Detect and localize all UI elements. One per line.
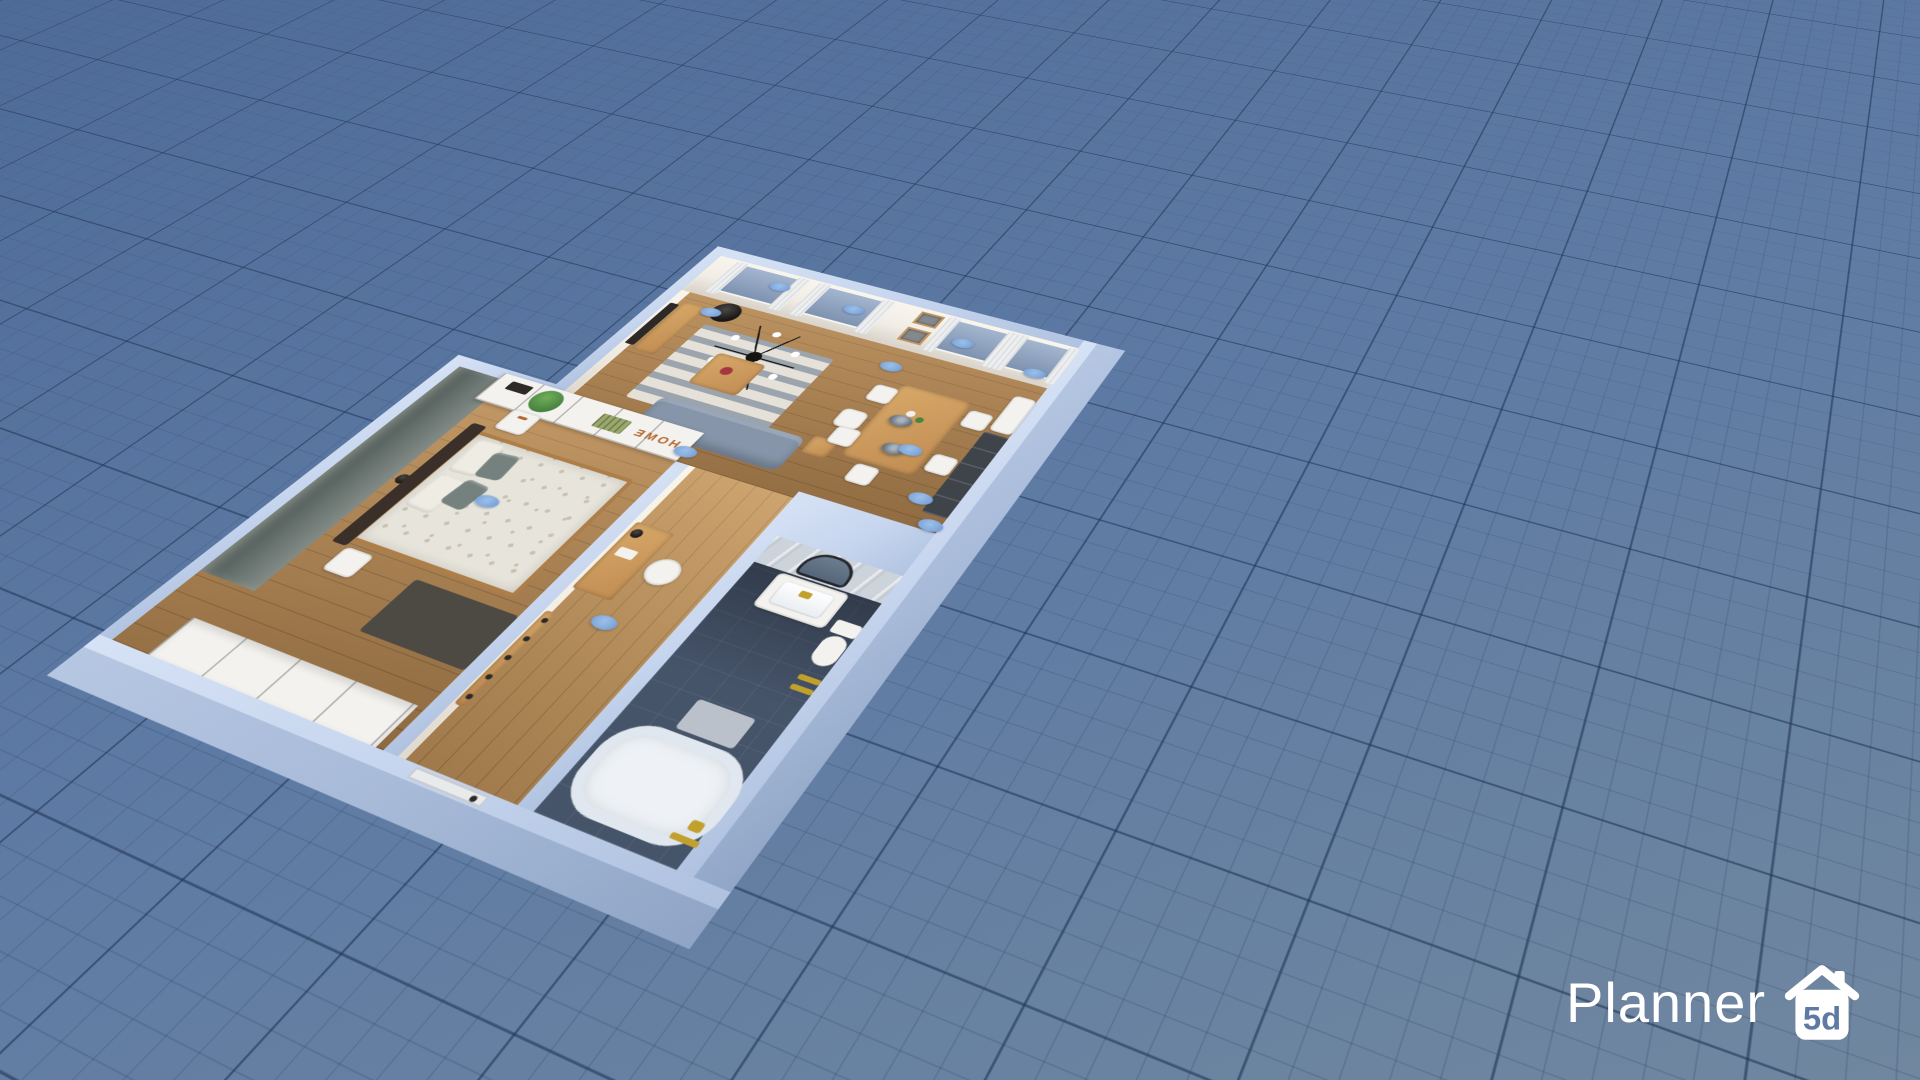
planner-logo-text: Planner: [1566, 975, 1766, 1031]
perspective-layer: HOME: [0, 0, 1920, 1080]
3d-viewport[interactable]: HOME: [0, 0, 1920, 1080]
house-chimney-icon: [1835, 971, 1845, 987]
planner5d-watermark: Planner 5d: [1566, 960, 1862, 1046]
planner-5d-badge-icon: 5d: [1782, 960, 1862, 1046]
badge-text: 5d: [1803, 1000, 1841, 1037]
